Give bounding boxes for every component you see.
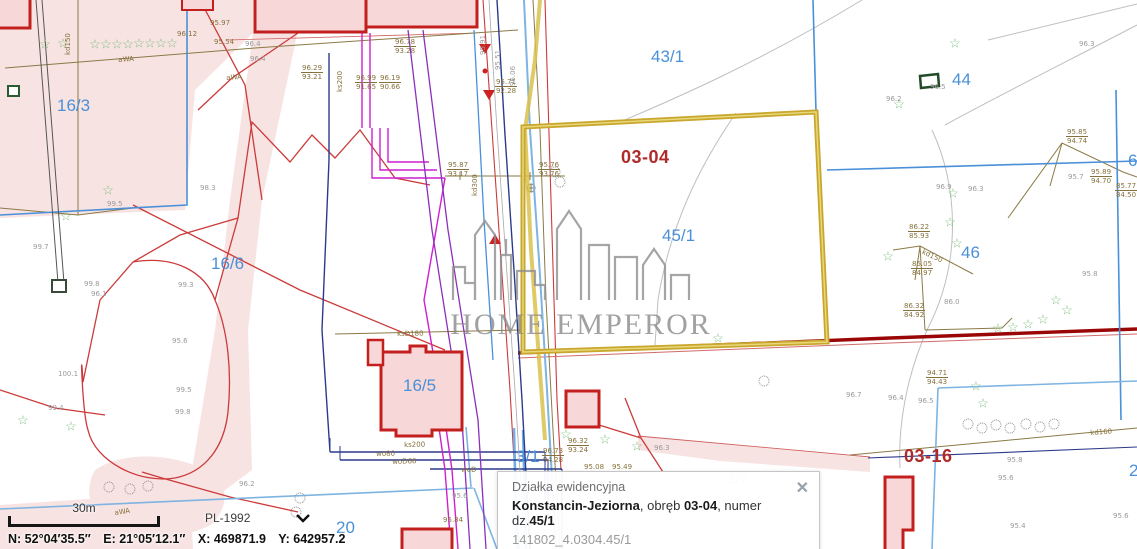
map-annotation: 96.3 [968, 185, 984, 193]
tree-star-icon: ☆ [949, 37, 961, 50]
map-annotation: 95.6 [172, 337, 188, 345]
tree-star-icon: ☆ [1037, 313, 1049, 326]
map-annotation: wo80 [376, 450, 395, 458]
tree-star-icon: ☆ [560, 428, 572, 441]
map-annotation: 99.5 [107, 200, 123, 208]
tree-star-icon: ☆ [970, 380, 982, 393]
popup-title: Działka ewidencyjna [512, 480, 807, 494]
parcel-label[interactable]: 6 [1128, 151, 1137, 171]
map-annotation: 96.1990.66 [379, 74, 401, 91]
tree-star-icon: ☆ [947, 187, 959, 200]
tree-star-icon: ☆ [951, 237, 963, 250]
tree-star-icon: ☆ [882, 250, 894, 263]
map-annotation: woD [461, 466, 477, 474]
tree-star-icon: ☆ [977, 397, 989, 410]
map-annotation: 99.8 [175, 408, 191, 416]
map-annotation: 85.7784.50 [1115, 182, 1137, 199]
tree-circle-icon [1035, 422, 1046, 433]
tree-star-icon: ☆ [102, 184, 114, 197]
map-annotation: 98.3 [200, 184, 216, 192]
close-icon[interactable]: ✕ [796, 478, 809, 498]
tree-star-icon: ☆ [100, 38, 112, 51]
coord-y: Y: 642957.2 [278, 532, 345, 546]
tree-star-icon: ☆ [1061, 304, 1073, 317]
map-annotation: 95.97 [210, 19, 230, 27]
tree-circle-icon [1005, 423, 1016, 434]
tree-star-icon: ☆ [1050, 294, 1062, 307]
tree-star-icon: ☆ [111, 38, 123, 51]
map-annotation: 96.4 [245, 40, 261, 48]
map-annotation: 95.8793.17 [447, 161, 469, 178]
popup-feature-text: 45/1 [529, 513, 554, 528]
map-viewport[interactable]: 16/316/616/543/14445/146203/12/76203-040… [0, 0, 1137, 549]
map-annotation: 95.49 [612, 463, 632, 471]
map-annotation: 85.0584.97 [911, 260, 933, 277]
coordinates-readout: N: 52°04′35.5″ E: 21°05′12.1″ X: 469871.… [8, 532, 354, 546]
map-annotation: 96.5 [918, 397, 934, 405]
map-annotation: 86.0 [944, 298, 960, 306]
district-label: 03-16 [904, 446, 953, 467]
map-annotation: 96.3 [654, 444, 670, 452]
map-annotation: 96.4 [888, 394, 904, 402]
parcel-label[interactable]: 16/3 [57, 96, 90, 116]
coord-n: N: 52°04′35.5″ [8, 532, 91, 546]
tree-star-icon: ☆ [133, 37, 145, 50]
tree-star-icon: ☆ [144, 37, 156, 50]
coord-e: E: 21°05′12.1″ [103, 532, 185, 546]
popup-feature-text: , obręb [640, 498, 684, 513]
tree-star-icon: ☆ [122, 38, 134, 51]
map-annotation: 94.7194.43 [926, 369, 948, 386]
parcel-label[interactable]: 44 [952, 70, 971, 90]
map-annotation: 96.5 [930, 83, 946, 91]
map-annotation: 96.7394.28 [542, 447, 564, 464]
map-annotation: 95.8 [1082, 270, 1098, 278]
map-annotation: 96.7893.28 [394, 38, 416, 55]
map-annotation: 96.7 [846, 391, 862, 399]
popup-feature-text: Konstancin-Jeziorna [512, 498, 640, 513]
parcel-label[interactable]: 3/1 [516, 447, 540, 467]
tree-star-icon: ☆ [599, 433, 611, 446]
parcel-label[interactable]: 16/5 [403, 376, 436, 396]
map-annotation: 99.5 [176, 386, 192, 394]
tree-circle-icon [963, 419, 974, 430]
district-label: 03-04 [621, 147, 670, 168]
scale-label: 30m [8, 501, 160, 515]
scale-bar-line [8, 516, 160, 527]
map-annotation: 95.54 [214, 38, 234, 46]
tree-star-icon: ☆ [631, 440, 643, 453]
map-annotation: 99.3 [178, 281, 194, 289]
map-annotation: 86.3284.92 [903, 302, 925, 319]
parcel-label[interactable]: 43/1 [651, 47, 684, 67]
map-annotation: 95.6 [452, 492, 468, 500]
map-annotation: 95.6 [1113, 512, 1129, 520]
map-annotation: 95.8994.70 [1090, 168, 1112, 185]
map-annotation: 96.2 [239, 480, 255, 488]
map-annotation: 99.7 [33, 243, 49, 251]
map-annotation: 96.06 [509, 66, 517, 86]
tree-circle-icon [977, 423, 988, 434]
feature-info-popup: Działka ewidencyjna ✕ Konstancin-Jeziorn… [497, 471, 820, 549]
map-annotation: aWA [226, 73, 242, 82]
tree-star-icon: ☆ [57, 37, 69, 50]
map-annotation: 95.51 [494, 50, 502, 70]
tree-star-icon: ☆ [712, 332, 724, 345]
tree-star-icon: ☆ [166, 37, 178, 50]
map-annotation: 95.08 [584, 463, 604, 471]
map-annotation: 95.4 [1010, 522, 1026, 530]
map-annotation: 96.12 [177, 30, 197, 38]
map-annotation: aWA [118, 55, 134, 64]
tree-circle-icon [1021, 419, 1032, 430]
map-annotation: 100.1 [58, 370, 78, 378]
parcel-label[interactable]: 45/1 [662, 226, 695, 246]
tree-star-icon: ☆ [89, 38, 101, 51]
tree-star-icon: ☆ [39, 38, 51, 51]
map-annotation: 96.2993.21 [301, 64, 323, 81]
map-annotation: ksD180 [397, 330, 424, 338]
popup-feature-line: Konstancin-Jeziorna, obręb 03-04, numer … [512, 498, 807, 528]
tree-circle-icon [295, 493, 306, 504]
crs-selector[interactable]: PL-1992 [205, 511, 310, 525]
map-annotation: 96.3 [1079, 40, 1095, 48]
labels-layer: 16/316/616/543/14445/146203/12/76203-040… [0, 0, 1137, 549]
tree-star-icon: ☆ [893, 98, 905, 111]
map-annotation: 95.91 [479, 35, 487, 55]
tree-circle-icon [125, 484, 136, 495]
map-annotation: 99.4 [48, 404, 64, 412]
parcel-label[interactable]: 46 [961, 243, 980, 263]
scale-bar: 30m [8, 501, 160, 527]
tree-star-icon: ☆ [155, 37, 167, 50]
map-annotation: 96.1 [91, 290, 107, 298]
tree-star-icon: ☆ [1007, 321, 1019, 334]
map-annotation: 96.9991.65 [355, 74, 377, 91]
tree-star-icon: ☆ [60, 210, 72, 223]
map-annotation: 96.4 [250, 55, 266, 63]
tree-circle-icon [555, 177, 566, 188]
map-annotation: 95.7 [1068, 173, 1084, 181]
popup-feature-id: 141802_4.0304.45/1 [512, 532, 807, 547]
map-annotation: 86.2285.93 [908, 223, 930, 240]
tree-star-icon: ☆ [944, 216, 956, 229]
map-annotation: 95.8594.74 [1066, 128, 1088, 145]
popup-feature-text: 03-04 [684, 498, 717, 513]
tree-circle-icon [991, 420, 1002, 431]
tree-star-icon: ☆ [65, 420, 77, 433]
tree-star-icon: ☆ [992, 322, 1004, 335]
chevron-down-icon[interactable] [296, 514, 310, 523]
map-annotation: kd160 [1090, 427, 1112, 437]
crs-label: PL-1992 [205, 511, 250, 525]
tree-circle-icon [759, 376, 770, 387]
tree-star-icon: ☆ [17, 414, 29, 427]
tree-circle-icon [1049, 419, 1060, 430]
map-annotation: woD66 [392, 457, 417, 466]
map-annotation: ks200 [404, 441, 425, 449]
tree-circle-icon [104, 482, 115, 493]
map-annotation: 95.84 [443, 516, 463, 524]
map-annotation: ks200 [336, 71, 344, 92]
parcel-label[interactable]: 16/6 [211, 254, 244, 274]
parcel-label[interactable]: 2 [1129, 461, 1137, 481]
map-annotation: 95.8 [1007, 456, 1023, 464]
map-annotation: 95.6 [998, 474, 1014, 482]
map-annotation: 99.8 [84, 280, 100, 288]
tree-star-icon: ☆ [1022, 318, 1034, 331]
tree-circle-icon [143, 481, 154, 492]
map-annotation: kd300 [471, 174, 479, 196]
coord-x: X: 469871.9 [198, 532, 266, 546]
